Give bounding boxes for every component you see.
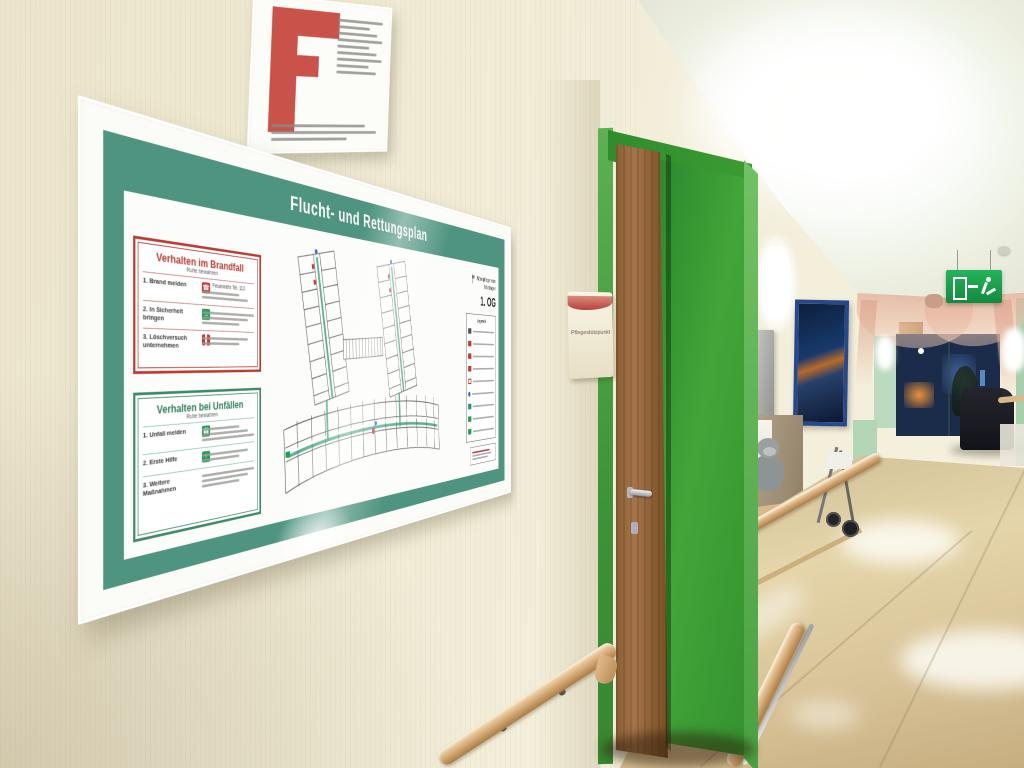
facility-header: Altenpflegeheim Nürtingen xyxy=(472,274,496,293)
exit-door-icon xyxy=(953,277,967,300)
legend-info-point-icon xyxy=(468,325,494,339)
plan-info-box xyxy=(470,443,496,466)
curtain-knot xyxy=(925,294,943,308)
corridor-scene: Pflegestützpunkt Flucht- und Rettungspla… xyxy=(0,0,1024,768)
door-floor-shadow xyxy=(602,732,754,766)
radiator xyxy=(1000,424,1024,466)
emergency-exit-sign xyxy=(946,270,1002,303)
exit-sign-rod xyxy=(990,250,991,272)
door-gap-shadow xyxy=(666,154,671,752)
floor-plan xyxy=(273,234,442,512)
smoke-detector xyxy=(998,246,1010,255)
exit-arrow-icon xyxy=(968,285,978,288)
legend-title: Legende xyxy=(468,317,494,325)
legend-fire-extinguisher-icon xyxy=(468,337,494,350)
fire-safety-notice-icon xyxy=(247,0,393,154)
rollator-wheel xyxy=(826,512,841,527)
notice-text-column xyxy=(336,15,383,79)
legend-fire-alarm-button-icon xyxy=(468,350,494,363)
poster-left-column: Verhalten im Brandfall Ruhe bewahren 1. … xyxy=(133,207,261,542)
framed-picture xyxy=(793,300,849,427)
exit-sign-rod xyxy=(957,250,958,272)
notice-red-shape xyxy=(295,55,319,77)
legend-wall-hydrant-icon xyxy=(468,362,494,375)
door-sign: Pflegestützpunkt xyxy=(568,292,614,380)
wall-lamp-far xyxy=(876,336,894,370)
legend-box: Legende xyxy=(466,313,496,443)
wooden-door xyxy=(616,144,668,764)
door-sign-label: Pflegestützpunkt xyxy=(570,330,611,337)
floor-label: 1. OG xyxy=(480,294,495,311)
door-keyhole-plate xyxy=(631,522,638,534)
rollator-wheel xyxy=(842,520,859,537)
notice-text-bottom xyxy=(271,120,377,145)
door-sign-band xyxy=(568,296,613,310)
notice-red-shape xyxy=(296,9,340,39)
fire-step-row: 3. Löschversuch unternehmen xyxy=(143,328,254,354)
floor-reflection xyxy=(790,700,860,730)
door-frame-right xyxy=(744,146,758,768)
accident-behavior-box: Verhalten bei Unfällen Ruhe bewahren 1. … xyxy=(133,388,261,543)
fire-behavior-box: Verhalten im Brandfall Ruhe bewahren 1. … xyxy=(133,235,261,374)
running-man-leg-icon xyxy=(986,288,996,296)
door-reveal-panel xyxy=(660,158,746,764)
assembly-point-icon xyxy=(472,274,475,283)
wall-lamp-far xyxy=(1002,328,1024,372)
legend-assembly-point-icon xyxy=(468,422,494,438)
poster-right-column: Altenpflegeheim Nürtingen 1. OG Legende xyxy=(448,267,496,472)
running-man-head-icon xyxy=(986,277,991,282)
green-door-assembly xyxy=(594,118,770,768)
